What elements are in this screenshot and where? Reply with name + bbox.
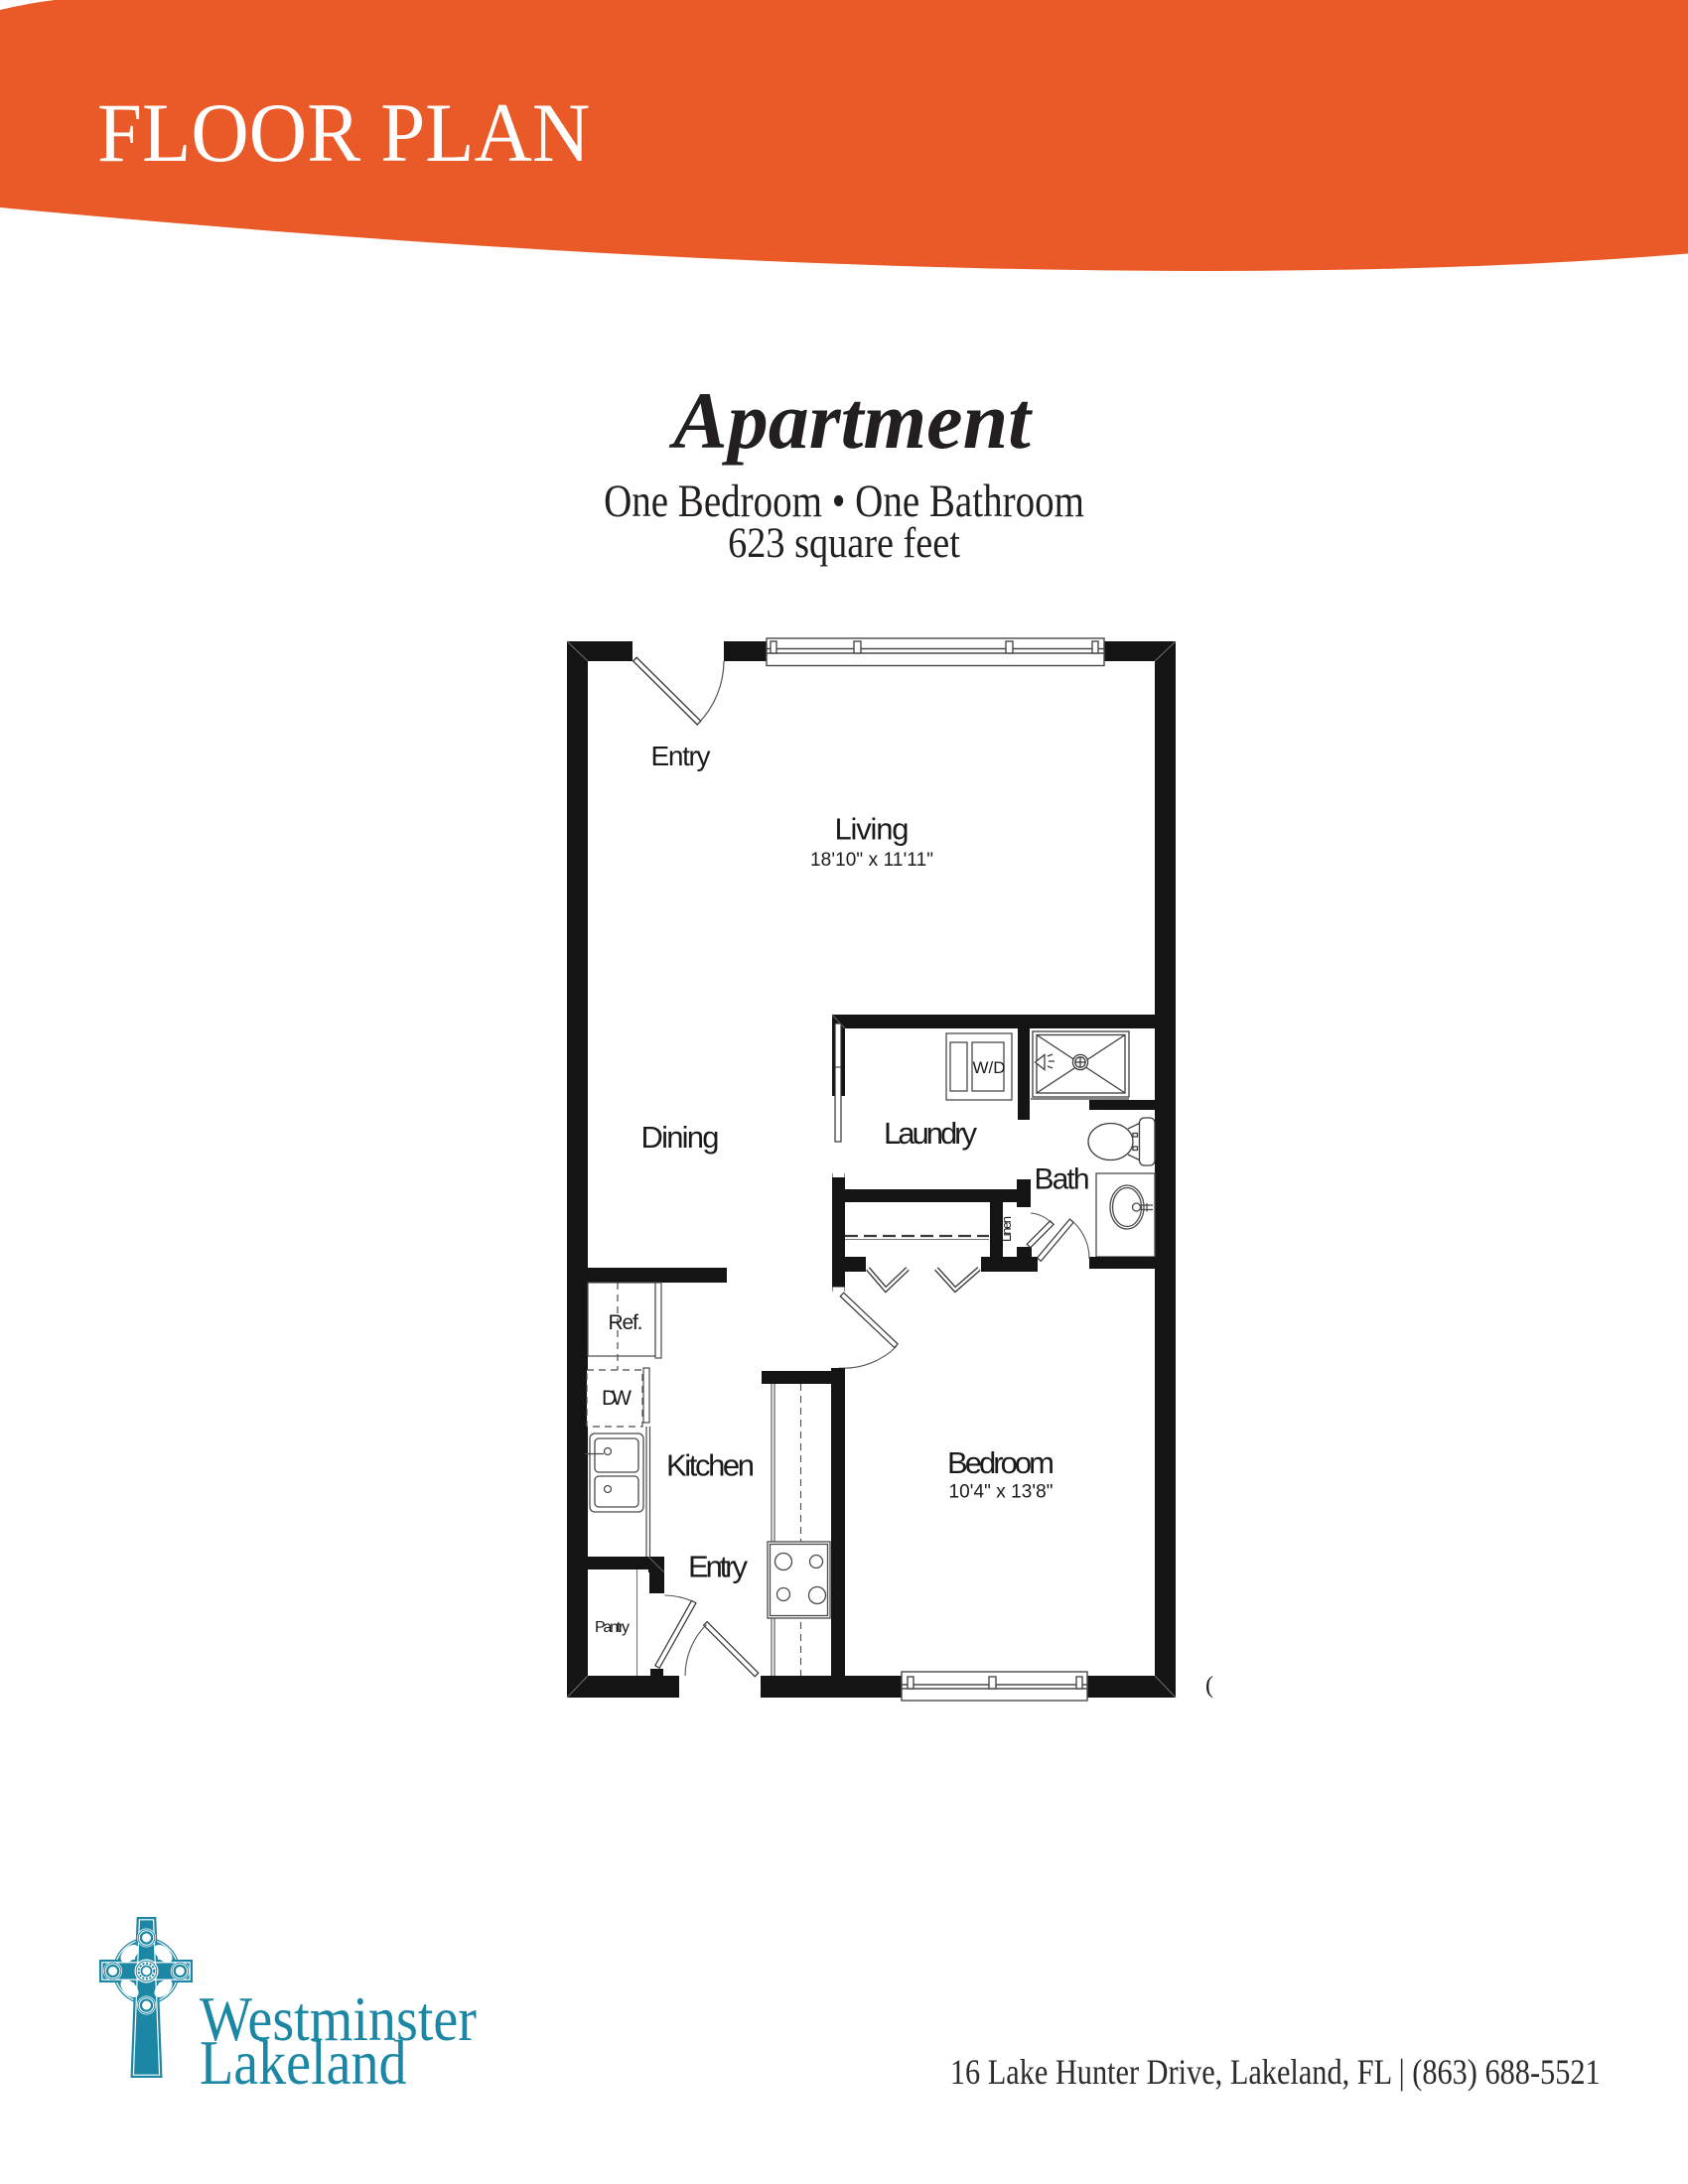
svg-text:Ref.: Ref. xyxy=(609,1311,643,1334)
svg-text:W/D: W/D xyxy=(973,1058,1006,1077)
svg-text:10'4" x 13'8": 10'4" x 13'8" xyxy=(949,1482,1054,1503)
svg-text:Living: Living xyxy=(835,812,910,847)
svg-text:Entry: Entry xyxy=(688,1550,749,1584)
svg-text:Linen: Linen xyxy=(999,1216,1014,1242)
svg-text:Bath: Bath xyxy=(1035,1163,1090,1196)
svg-text:(: ( xyxy=(1205,1673,1213,1699)
svg-text:Entry: Entry xyxy=(651,741,711,771)
svg-text:Bedroom: Bedroom xyxy=(947,1445,1055,1480)
svg-text:DW: DW xyxy=(602,1387,632,1410)
svg-text:Dining: Dining xyxy=(641,1120,720,1155)
svg-text:Laundry: Laundry xyxy=(884,1116,978,1151)
svg-text:Kitchen: Kitchen xyxy=(666,1448,755,1483)
svg-text:Pantry: Pantry xyxy=(595,1619,630,1636)
svg-text:18'10" x 11'11": 18'10" x 11'11" xyxy=(810,850,933,871)
